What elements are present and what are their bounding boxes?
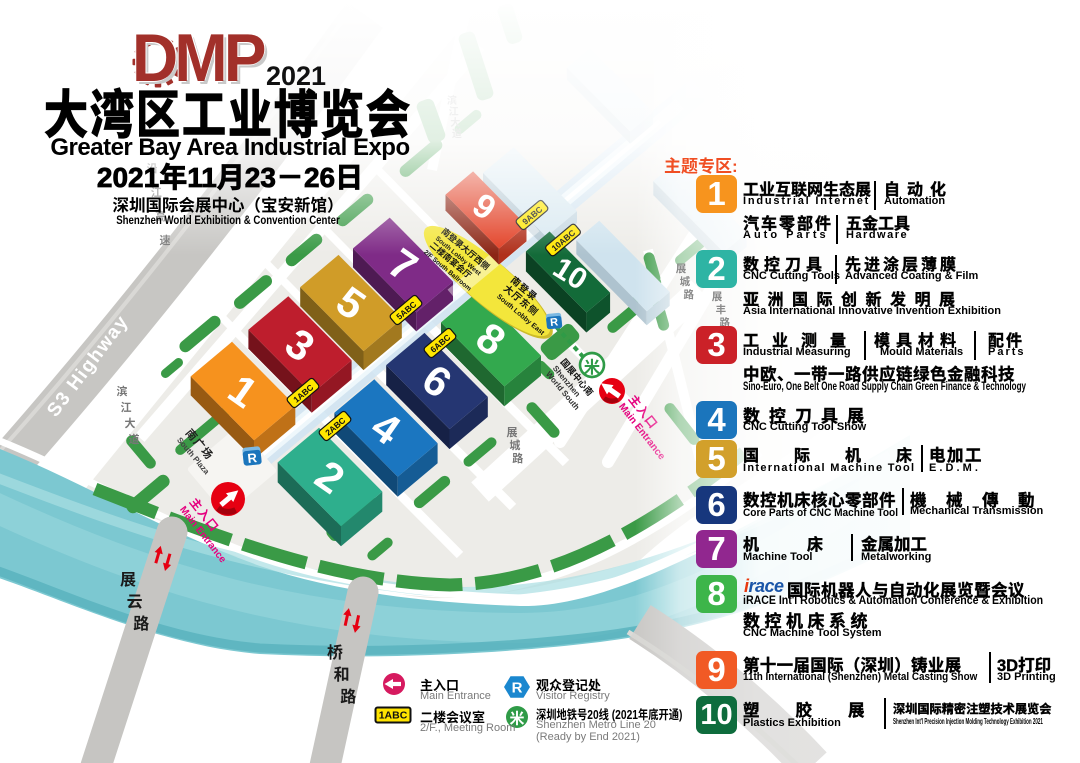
- svg-text:路: 路: [340, 683, 356, 707]
- svg-text:滨: 滨: [117, 383, 128, 399]
- svg-text:和: 和: [334, 661, 350, 685]
- svg-text:R: R: [550, 316, 559, 329]
- svg-text:路: 路: [133, 610, 149, 634]
- svg-text:1ABC: 1ABC: [379, 710, 408, 722]
- svg-text:道: 道: [129, 431, 140, 447]
- svg-text:云: 云: [127, 588, 143, 612]
- svg-text:路: 路: [512, 450, 523, 466]
- svg-text:桥: 桥: [327, 639, 343, 663]
- svg-text:米: 米: [584, 354, 600, 378]
- svg-text:展: 展: [120, 566, 136, 590]
- svg-text:路: 路: [684, 287, 695, 302]
- svg-text:R: R: [512, 680, 523, 697]
- svg-text:大: 大: [125, 415, 136, 431]
- svg-text:江: 江: [121, 399, 132, 415]
